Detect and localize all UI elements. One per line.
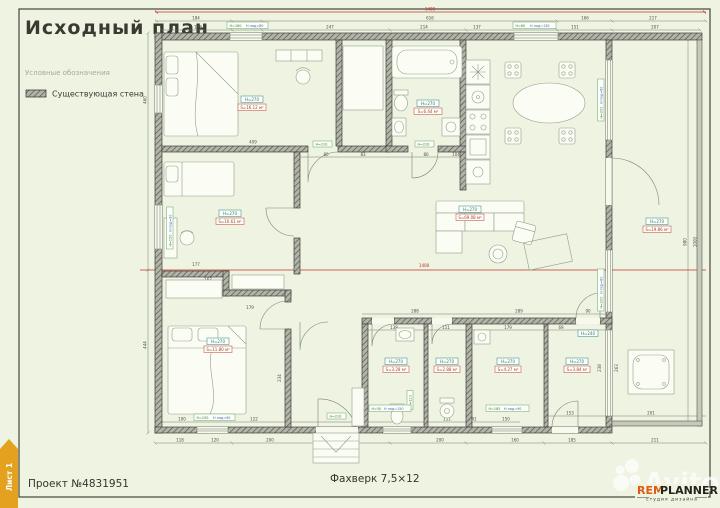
svg-text:H=200: H=200 bbox=[600, 297, 604, 309]
window-label: H=50H под=150 bbox=[369, 405, 411, 412]
dim-text: 151 bbox=[571, 25, 579, 30]
svg-text:H под=150: H под=150 bbox=[384, 407, 404, 411]
dim-text: 238 bbox=[597, 364, 602, 372]
dim-text: 90 bbox=[585, 309, 591, 314]
svg-text:H под=90: H под=90 bbox=[169, 215, 173, 232]
dim-text: 160 bbox=[511, 438, 519, 443]
door-label: H=210 bbox=[418, 143, 430, 147]
room-height: H=270 bbox=[389, 359, 403, 364]
window bbox=[606, 330, 612, 416]
room-label-wc-2: H=270S=2.88 м² bbox=[434, 358, 460, 373]
window-label: H=60H под=130 bbox=[513, 22, 556, 29]
room-area: S=10.61 м² bbox=[218, 219, 242, 224]
dim-text: 185 bbox=[568, 438, 576, 443]
dim-text: 289 bbox=[515, 309, 523, 314]
dim-text: 207 bbox=[651, 25, 659, 30]
shoe-cabinet-icon bbox=[352, 388, 364, 426]
room-height: H=270 bbox=[421, 101, 435, 106]
dim-text: 211 bbox=[651, 438, 659, 443]
room-label-bathroom-1: H=270S=6.44 м² bbox=[414, 100, 442, 115]
window bbox=[155, 85, 162, 113]
dim-text: 150 bbox=[502, 417, 510, 422]
sheet-tab: Лист 1 bbox=[0, 439, 18, 508]
chair-icon bbox=[296, 68, 310, 84]
room-area: S=2.88 м² bbox=[437, 367, 458, 372]
window bbox=[155, 205, 162, 249]
window-label: H=150H под=90 bbox=[167, 207, 174, 249]
room-area: S=19.86 м² bbox=[645, 227, 669, 232]
svg-text:H=150: H=150 bbox=[197, 416, 209, 420]
svg-text:H под=90: H под=90 bbox=[504, 407, 521, 411]
svg-text:H под=90: H под=90 bbox=[213, 416, 230, 420]
window-label: H=150H под=90 bbox=[194, 414, 235, 421]
bathtub-icon bbox=[392, 46, 462, 78]
room-label-hall: H=270S=4.27 м² bbox=[495, 358, 521, 373]
room-area: S=3.84 м² bbox=[567, 367, 588, 372]
door-labels: H=210 H=210 H=210 H=210 bbox=[313, 141, 434, 419]
legend-wall-swatch bbox=[26, 90, 46, 97]
wardrobe-icon bbox=[232, 275, 284, 289]
plan-sheet: Исходный план Условные обозначения Сущес… bbox=[0, 0, 720, 508]
svg-text:H=60: H=60 bbox=[516, 24, 526, 28]
svg-text:H=200: H=200 bbox=[600, 107, 604, 119]
room-height: H=270 bbox=[570, 359, 584, 364]
badge-h240: H=240 bbox=[578, 330, 598, 337]
dim-text: 1408 bbox=[419, 263, 430, 268]
wardrobe-icon bbox=[343, 46, 383, 110]
window bbox=[197, 427, 228, 433]
window bbox=[492, 427, 522, 433]
door bbox=[372, 318, 394, 346]
room-area: S=4.27 м² bbox=[498, 367, 519, 372]
footer-plan-size: Фахверк 7,5×12 bbox=[330, 473, 420, 485]
toilet-icon bbox=[440, 398, 454, 418]
logo-planner: PLANNER bbox=[660, 484, 719, 497]
dim-text: 120 bbox=[211, 438, 219, 443]
dim-text: 460 bbox=[143, 96, 148, 104]
room-height: H=270 bbox=[463, 207, 477, 212]
jacuzzi-icon bbox=[628, 350, 674, 394]
room-height: H=270 bbox=[501, 359, 515, 364]
room-area: S=16.12 м² bbox=[240, 105, 264, 110]
dim-text: 184 bbox=[192, 16, 200, 21]
room-area: S=11.80 м² bbox=[206, 347, 230, 352]
window bbox=[606, 250, 612, 312]
svg-text:H=185: H=185 bbox=[489, 407, 501, 411]
floor-plan-svg: Исходный план Условные обозначения Сущес… bbox=[0, 0, 720, 508]
dim-text: 263 bbox=[614, 364, 619, 372]
dim-text: 200 bbox=[266, 438, 274, 443]
remplanner-logo: REM PLANNER студия дизайна bbox=[635, 484, 719, 504]
room-height: H=240 bbox=[581, 331, 595, 336]
svg-text:H=180: H=180 bbox=[230, 24, 242, 28]
washer-icon bbox=[442, 118, 460, 136]
dim-text: 104 bbox=[452, 152, 460, 157]
double-bed-icon bbox=[164, 52, 238, 136]
svg-text:H=150: H=150 bbox=[169, 235, 173, 247]
dim-text: 153 bbox=[566, 411, 574, 416]
room-label-bedroom-1: H=270S=16.12 м² bbox=[238, 96, 266, 111]
svg-text:H под=130: H под=130 bbox=[530, 24, 550, 28]
legend-title: Условные обозначения bbox=[25, 69, 110, 77]
room-label-laundry: H=270S=3.84 м² bbox=[564, 358, 590, 373]
room-height: H=270 bbox=[223, 211, 237, 216]
dim-text: 200 bbox=[436, 438, 444, 443]
dresser-icon bbox=[276, 50, 322, 61]
door bbox=[552, 401, 578, 433]
wardrobe-icon bbox=[166, 280, 222, 298]
dining-table-icon bbox=[513, 83, 585, 123]
dim-text: 122 bbox=[250, 417, 258, 422]
room-height: H=270 bbox=[440, 359, 454, 364]
door-label: H=210 bbox=[330, 415, 342, 419]
room-label-wc-1: H=270S=3.28 м² bbox=[383, 358, 409, 373]
coffee-table-icon bbox=[489, 245, 507, 263]
dim-text: 201 bbox=[647, 411, 655, 416]
svg-text:H=50: H=50 bbox=[372, 407, 382, 411]
door bbox=[260, 301, 288, 329]
dim-text: 118 bbox=[176, 438, 184, 443]
room-height: H=270 bbox=[211, 339, 225, 344]
dim-text: 214 bbox=[420, 25, 428, 30]
room-label-office: H=270S=10.61 м² bbox=[216, 210, 244, 225]
window-label: H=200H под=60 bbox=[598, 79, 605, 121]
room-height: H=270 bbox=[245, 97, 259, 102]
dim-text: 616 bbox=[426, 16, 434, 21]
dim-text: 1408 bbox=[425, 7, 436, 12]
toilet-icon bbox=[394, 90, 408, 111]
dim-text: 100 bbox=[178, 417, 186, 422]
dim-text: 247 bbox=[326, 25, 334, 30]
room-area: S=69.08 м² bbox=[458, 215, 482, 220]
dim-text: 177 bbox=[192, 262, 200, 267]
dim-text: 69 bbox=[558, 325, 564, 330]
svg-text:H под=60: H под=60 bbox=[600, 87, 604, 104]
dim-text: 444 bbox=[143, 341, 148, 349]
legend-wall-label: Существующая стена bbox=[52, 90, 144, 99]
window-label: H=185H под=90 bbox=[486, 405, 529, 412]
svg-text:H под=60: H под=60 bbox=[600, 277, 604, 294]
door bbox=[300, 322, 328, 350]
room-height: H=270 bbox=[650, 219, 664, 224]
logo-subtitle: студия дизайна bbox=[646, 496, 698, 503]
sink-icon bbox=[396, 328, 414, 341]
entry-steps-icon bbox=[313, 433, 359, 463]
boiler-icon bbox=[474, 330, 490, 344]
dim-text: 83 bbox=[360, 152, 366, 157]
svg-text:H под=80: H под=80 bbox=[246, 24, 263, 28]
room-area: S=3.28 м² bbox=[386, 367, 407, 372]
project-number: Проект №4831951 bbox=[28, 478, 129, 490]
door bbox=[432, 318, 452, 344]
dim-text: 217 bbox=[649, 16, 657, 21]
kitchen-counter-icon bbox=[466, 60, 490, 184]
window-label: H=200H под=60 bbox=[598, 269, 605, 311]
dim-text: 980 bbox=[683, 238, 688, 246]
window bbox=[230, 33, 262, 40]
dim-text: 188 bbox=[194, 25, 202, 30]
dim-text: 137 bbox=[473, 25, 481, 30]
dim-text: 234 bbox=[277, 374, 282, 382]
dim-text: 179 bbox=[504, 325, 512, 330]
sink-icon bbox=[392, 118, 406, 136]
window bbox=[383, 427, 411, 433]
window-label: H=180H под=80 bbox=[227, 22, 268, 29]
window bbox=[514, 33, 558, 40]
sheet-tab-label: Лист 1 bbox=[5, 463, 14, 491]
room-area: S=6.44 м² bbox=[418, 109, 439, 114]
single-bed-icon bbox=[164, 162, 234, 196]
dim-text: 179 bbox=[246, 305, 254, 310]
door-label: H=210 bbox=[316, 143, 328, 147]
door bbox=[266, 208, 294, 236]
dim-text: 409 bbox=[249, 140, 257, 145]
dim-text: 166 bbox=[581, 16, 589, 21]
room-label-terrace: H=270S=19.86 м² bbox=[643, 218, 671, 233]
door bbox=[606, 158, 659, 205]
window bbox=[606, 60, 612, 140]
dim-text: 288 bbox=[411, 309, 419, 314]
dim-text: 80 bbox=[423, 152, 429, 157]
